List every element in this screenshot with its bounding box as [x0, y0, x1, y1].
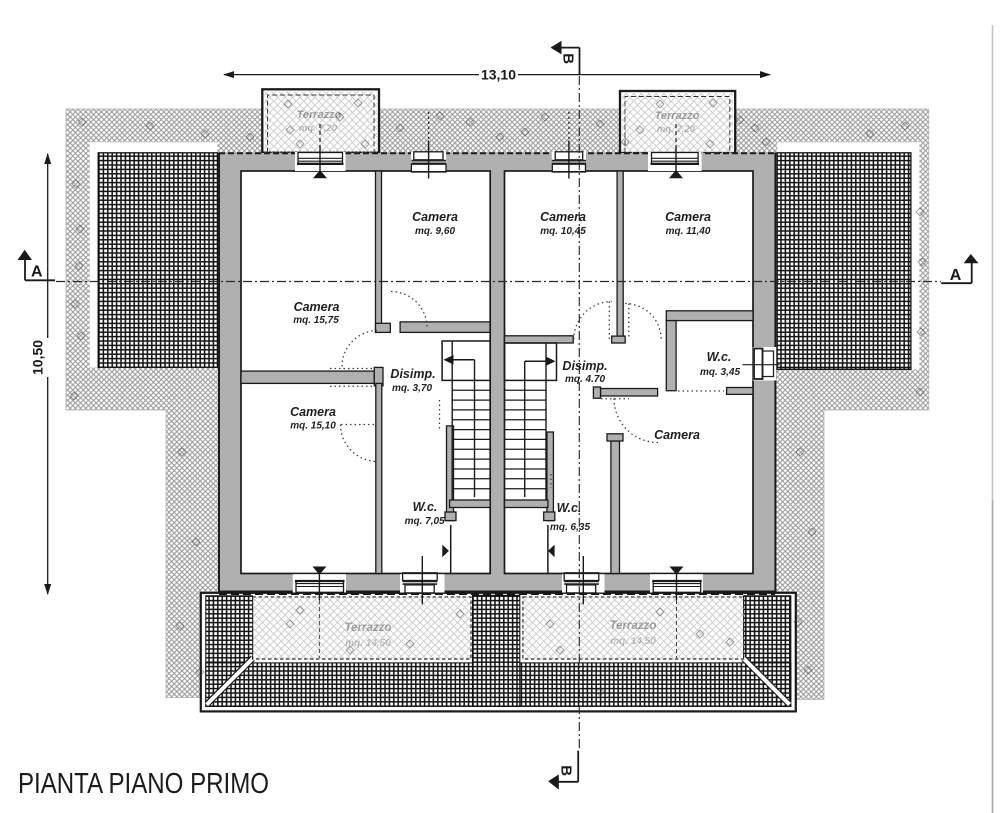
svg-text:Disimp.: Disimp.	[390, 367, 435, 381]
svg-text:Terrazzo: Terrazzo	[297, 109, 342, 121]
svg-text:Camera: Camera	[654, 428, 700, 442]
svg-text:13,10: 13,10	[481, 67, 516, 83]
svg-text:mq. 7,05: mq. 7,05	[405, 516, 445, 527]
svg-text:mq. 7,20: mq. 7,20	[299, 123, 338, 134]
svg-text:mq. 15,10: mq. 15,10	[290, 421, 336, 432]
svg-text:mq. 14,50: mq. 14,50	[345, 638, 391, 649]
svg-text:Camera: Camera	[665, 210, 711, 224]
svg-text:mq. 4.70: mq. 4.70	[565, 374, 605, 385]
svg-text:B: B	[558, 765, 575, 776]
svg-text:mq. 9,60: mq. 9,60	[415, 226, 455, 237]
svg-text:W.c.: W.c.	[557, 501, 582, 515]
svg-text:mq. 15,75: mq. 15,75	[293, 315, 339, 326]
svg-text:Camera: Camera	[540, 210, 586, 224]
svg-text:Camera: Camera	[294, 300, 340, 314]
svg-text:mq. 14,50: mq. 14,50	[610, 636, 656, 647]
svg-text:PIANTA PIANO PRIMO: PIANTA PIANO PRIMO	[18, 768, 269, 800]
svg-text:Camera: Camera	[412, 210, 458, 224]
svg-text:10,50: 10,50	[30, 340, 46, 375]
svg-text:W.c.: W.c.	[413, 500, 438, 514]
svg-text:B: B	[560, 53, 577, 64]
svg-text:mq. 3,70: mq. 3,70	[392, 383, 432, 394]
svg-text:W.c.: W.c.	[707, 350, 732, 364]
svg-text:mq. 3,45: mq. 3,45	[700, 367, 740, 378]
svg-text:Disimp.: Disimp.	[562, 359, 607, 373]
svg-text:mq. 10,45: mq. 10,45	[540, 226, 586, 237]
svg-text:Camera: Camera	[290, 405, 336, 419]
svg-text:Terrazzo: Terrazzo	[345, 622, 392, 634]
svg-text:mq. 6,35: mq. 6,35	[550, 522, 590, 533]
svg-text:mq. 11,40: mq. 11,40	[666, 226, 711, 237]
svg-text:Terrazzo: Terrazzo	[655, 110, 700, 122]
svg-text:Terrazzo: Terrazzo	[610, 620, 657, 632]
svg-text:A: A	[31, 264, 43, 281]
svg-text:A: A	[950, 267, 962, 284]
